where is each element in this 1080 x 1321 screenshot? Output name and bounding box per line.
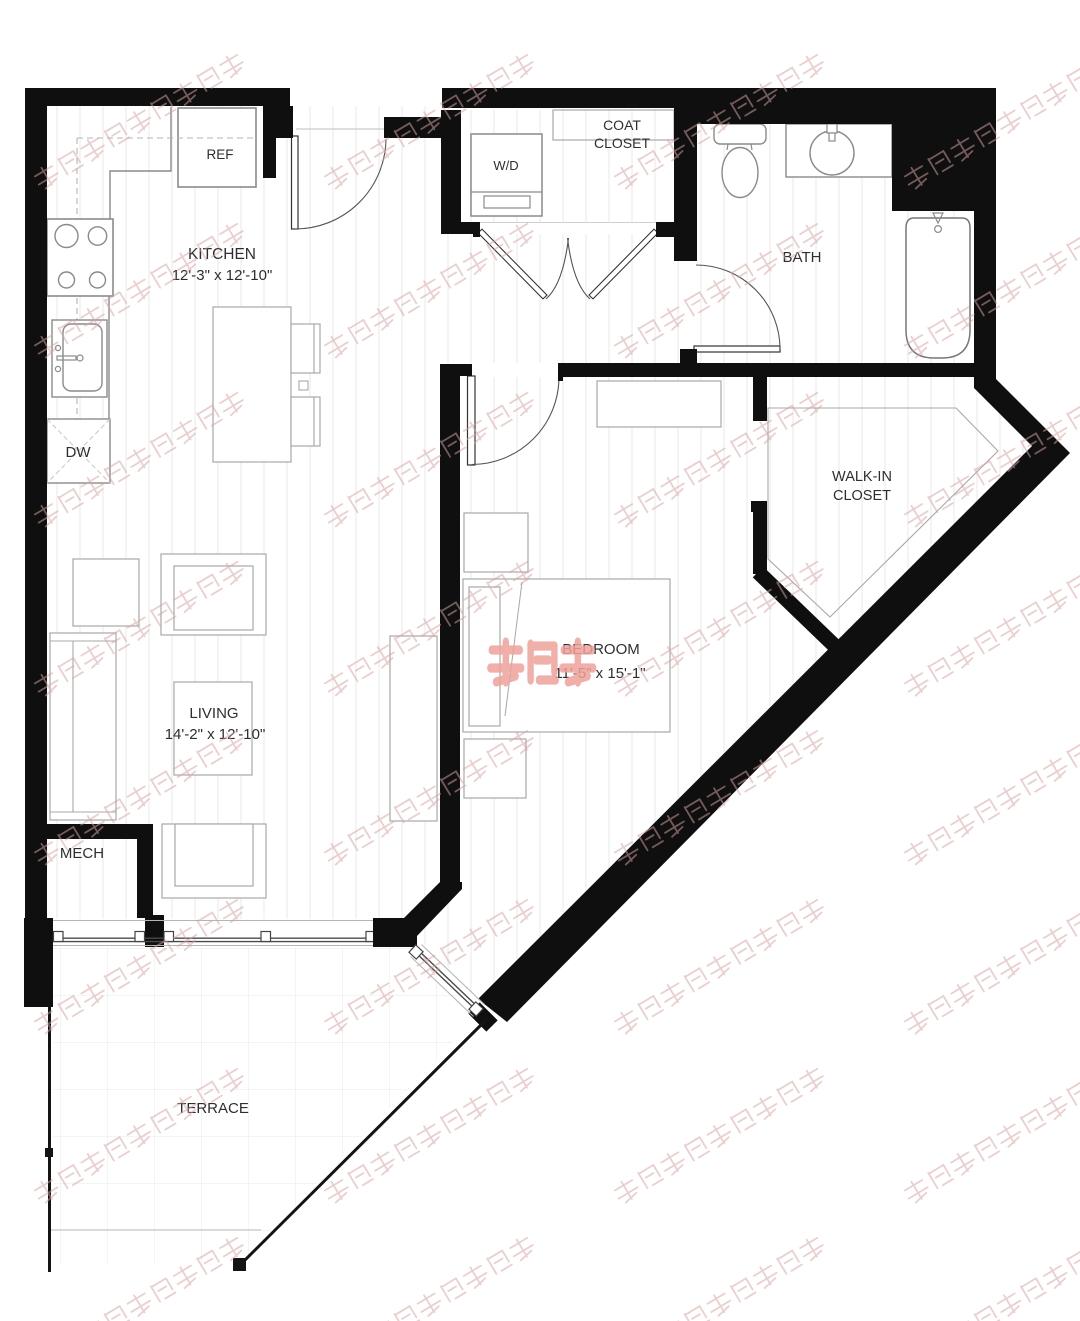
svg-text:REF: REF xyxy=(207,147,234,162)
svg-text:14'-2" x 12'-10": 14'-2" x 12'-10" xyxy=(165,726,266,743)
svg-text:W/D: W/D xyxy=(493,158,518,173)
svg-text:COAT: COAT xyxy=(603,117,641,133)
svg-text:DW: DW xyxy=(66,444,92,461)
svg-text:WALK-IN: WALK-IN xyxy=(832,469,892,485)
svg-text:12'-3" x 12'-10": 12'-3" x 12'-10" xyxy=(172,267,273,284)
svg-text:KITCHEN: KITCHEN xyxy=(188,246,256,263)
svg-text:CLOSET: CLOSET xyxy=(833,488,891,504)
svg-text:LIVING: LIVING xyxy=(189,705,238,722)
svg-text:CLOSET: CLOSET xyxy=(594,135,650,151)
